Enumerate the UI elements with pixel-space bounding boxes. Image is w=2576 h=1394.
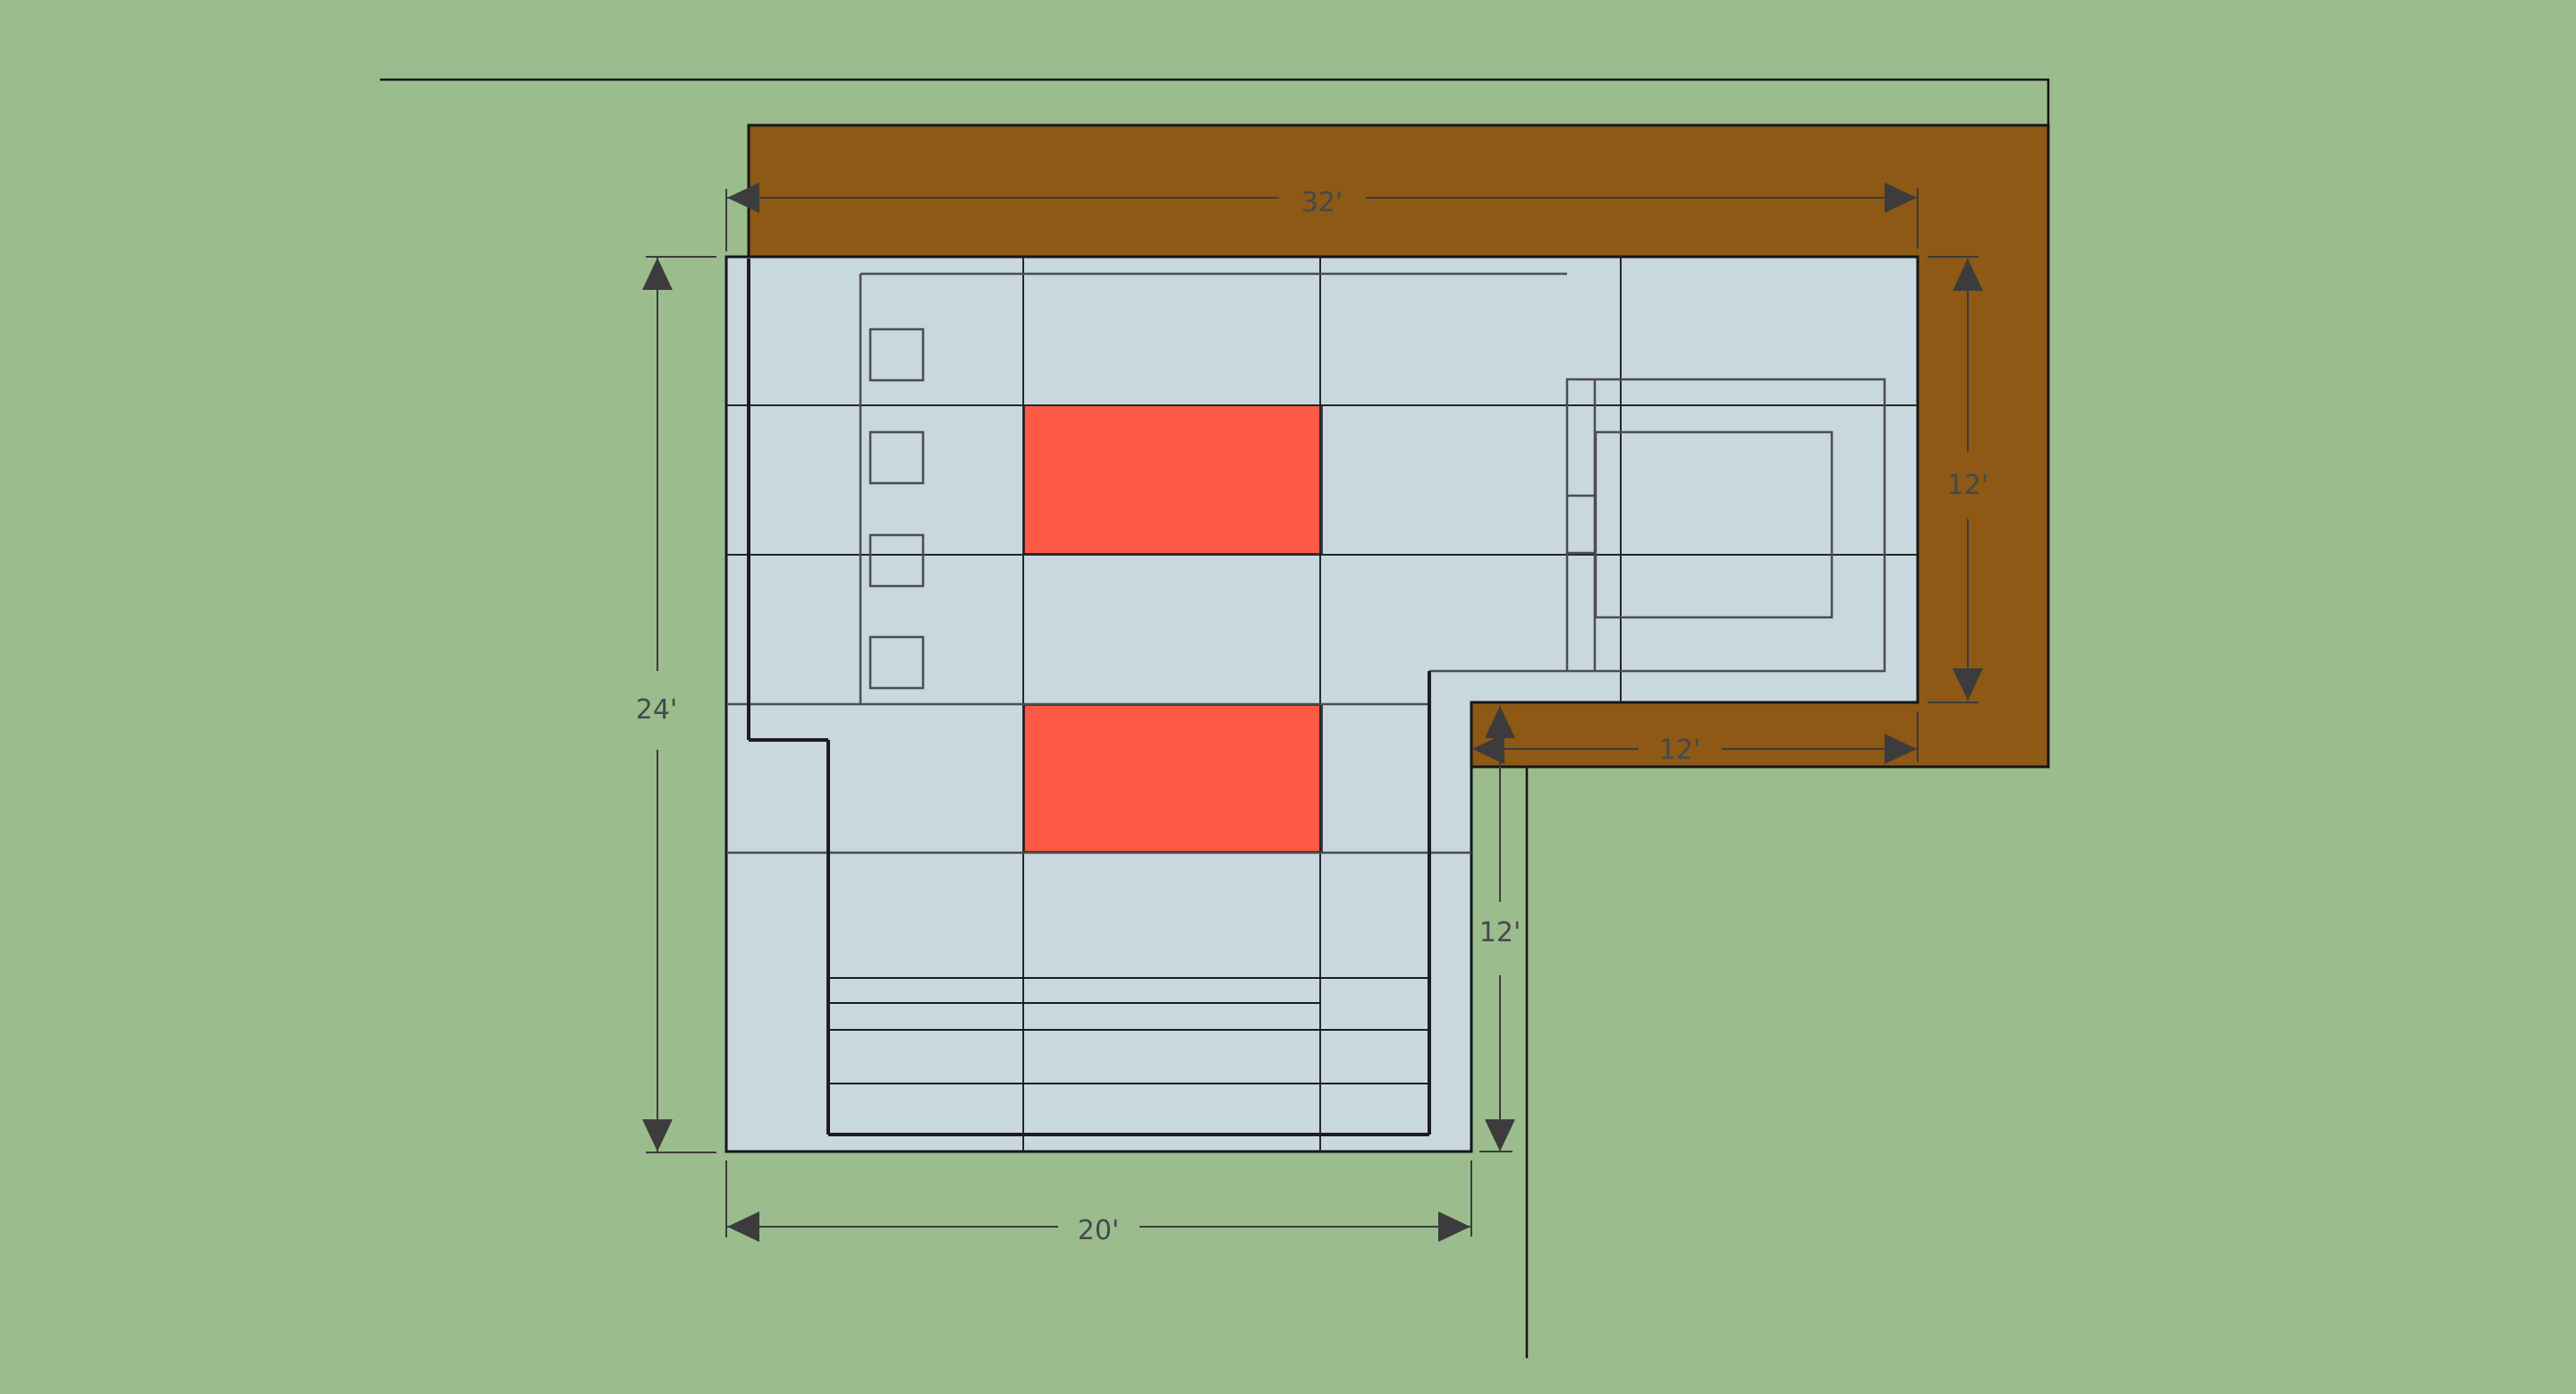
- arrowhead-right-icon: [1438, 1211, 1470, 1242]
- arrowhead-left-icon: [727, 1211, 759, 1242]
- arrowhead-left-icon: [727, 183, 759, 213]
- arrowhead-down-icon: [642, 1119, 673, 1152]
- accent-area-1: [1024, 405, 1322, 554]
- dimension-label: 12': [1479, 917, 1521, 948]
- dimension-label: 24': [636, 694, 677, 726]
- arrowhead-down-icon: [1485, 1119, 1515, 1152]
- dimension-label: 12': [1947, 470, 1988, 501]
- dimension-left-height: 24': [636, 257, 716, 1152]
- dimension-lower-right-height: 12': [1479, 706, 1521, 1152]
- dimension-label: 12': [1659, 735, 1700, 766]
- dimension-label: 20': [1078, 1215, 1119, 1246]
- sketchup-viewport[interactable]: 32' 24' 12' 12': [0, 0, 2576, 1394]
- dimension-bottom-width: 20': [726, 1160, 1471, 1246]
- property-line-top: [380, 80, 2048, 125]
- floor-plan-drawing: 32' 24' 12' 12': [0, 0, 2576, 1394]
- arrowhead-up-icon: [642, 258, 673, 290]
- accent-area-2: [1024, 705, 1322, 852]
- dimension-label: 32': [1301, 187, 1343, 218]
